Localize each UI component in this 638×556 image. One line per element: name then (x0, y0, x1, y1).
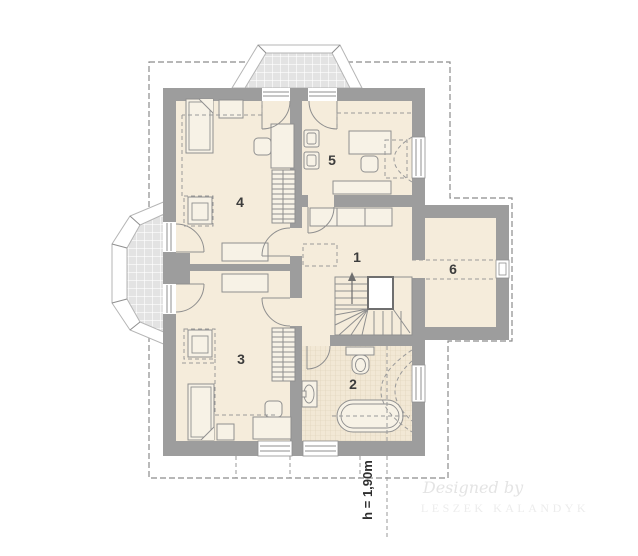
balcony-door-top-left-threshold (262, 88, 290, 101)
wall-c-stub (302, 195, 308, 207)
window-room5 (412, 137, 425, 178)
toilet-tank (346, 347, 374, 355)
wall-under-stairs (330, 335, 412, 346)
wall-c (334, 195, 425, 207)
floor-plan-drawing: 1 2 3 4 5 6 h = 1,90m Designed by LESZEK… (0, 0, 638, 556)
dresser-room3 (222, 274, 268, 292)
room-label-2: 2 (349, 376, 357, 392)
watermark-line1: Designed by (422, 478, 524, 497)
balcony-door-left-2-threshold (163, 284, 176, 314)
room-label-6: 6 (449, 261, 457, 277)
wall-bottom (163, 441, 425, 456)
passage-room6 (412, 260, 425, 278)
watermark: Designed by LESZEK KALANDYK (421, 478, 589, 515)
wall-left-mid (163, 252, 176, 284)
room-label-1: 1 (353, 249, 361, 265)
annex-wall-top (412, 205, 509, 218)
balcony-top (232, 45, 362, 88)
room-label-5: 5 (328, 152, 336, 168)
wall-a-mid (290, 256, 302, 298)
window-bottom-2 (303, 441, 338, 456)
wall-left-pillar (176, 253, 190, 284)
balcony-door-top-right-threshold (308, 88, 337, 101)
balcony-door-left-1-threshold (163, 222, 176, 252)
watermark-line2: LESZEK KALANDYK (421, 501, 589, 515)
shelf-room5 (333, 181, 391, 194)
room-label-3: 3 (237, 351, 245, 367)
dresser-room4 (222, 243, 268, 261)
annex-floor (425, 218, 496, 327)
sideboard-hallway (310, 208, 392, 226)
stairwell-void (368, 277, 393, 309)
desk-room4 (271, 124, 294, 168)
wall-top-right (337, 88, 425, 101)
window-bottom-1 (258, 441, 292, 456)
wall-top-pillar (290, 88, 308, 101)
room-label-4: 4 (236, 194, 244, 210)
annex-wall-bottom (412, 327, 509, 340)
hallway-furniture (310, 208, 392, 226)
wall-left-upper (163, 101, 176, 222)
floor-plan-page: 1 2 3 4 5 6 h = 1,90m Designed by LESZEK… (0, 0, 638, 556)
wall-b-thin (190, 264, 290, 271)
desk-room3 (253, 417, 291, 439)
nightstand-room3 (217, 424, 234, 440)
height-annotation: h = 1,90m (360, 460, 375, 520)
sink-tap (302, 391, 306, 397)
wall-left-lower (163, 314, 176, 441)
desk-room5 (349, 131, 391, 154)
chair-room5 (361, 156, 378, 172)
chair-room4 (254, 138, 271, 155)
window-bathroom (412, 365, 425, 402)
